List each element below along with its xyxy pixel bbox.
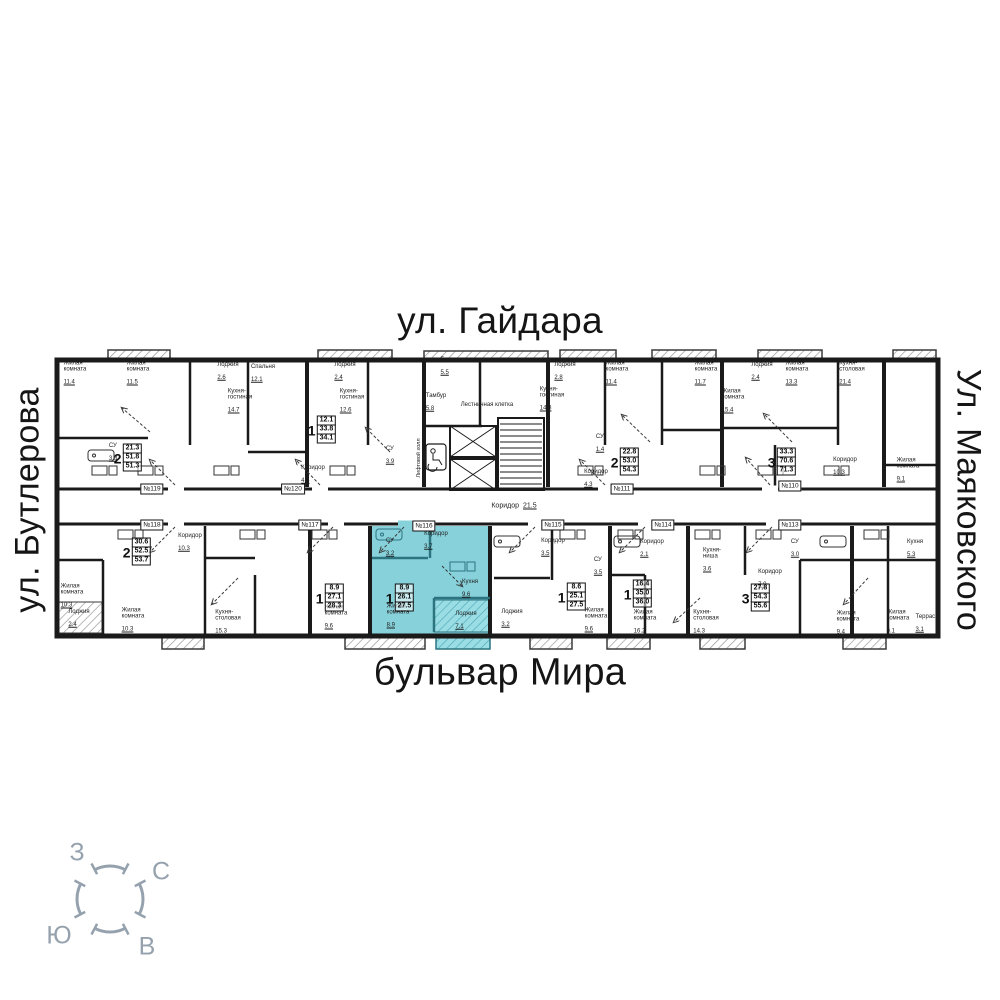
street-label-top: ул. Гайдара [397, 300, 603, 342]
street-label-right: Ул. Маяковского [949, 369, 988, 631]
lift-hall-label: Лифтовой холл [416, 438, 422, 477]
compass-rose [75, 864, 146, 935]
floor-plan-drawing [0, 0, 1000, 1000]
partition-walls-minor [57, 362, 936, 634]
street-label-bottom: бульвар Мира [374, 652, 626, 695]
street-label-left: ул. Бутлерова [9, 387, 48, 612]
compass-west-label: З [69, 839, 84, 868]
door-openings [168, 486, 782, 528]
stair-elevator-core [426, 362, 544, 490]
compass-east-label: В [139, 933, 156, 962]
corridor-area: 21.5 [523, 503, 537, 510]
corridor-name: Коридор [491, 503, 519, 510]
wheelchair-icon [426, 444, 446, 471]
compass-south-label: Ю [46, 922, 71, 951]
floorplan-page: ул. Гайдара бульвар Мира ул. Бутлерова У… [0, 0, 1000, 1000]
compass-north-label: С [152, 858, 170, 887]
corridor-label: Коридор21.5 [489, 503, 538, 510]
